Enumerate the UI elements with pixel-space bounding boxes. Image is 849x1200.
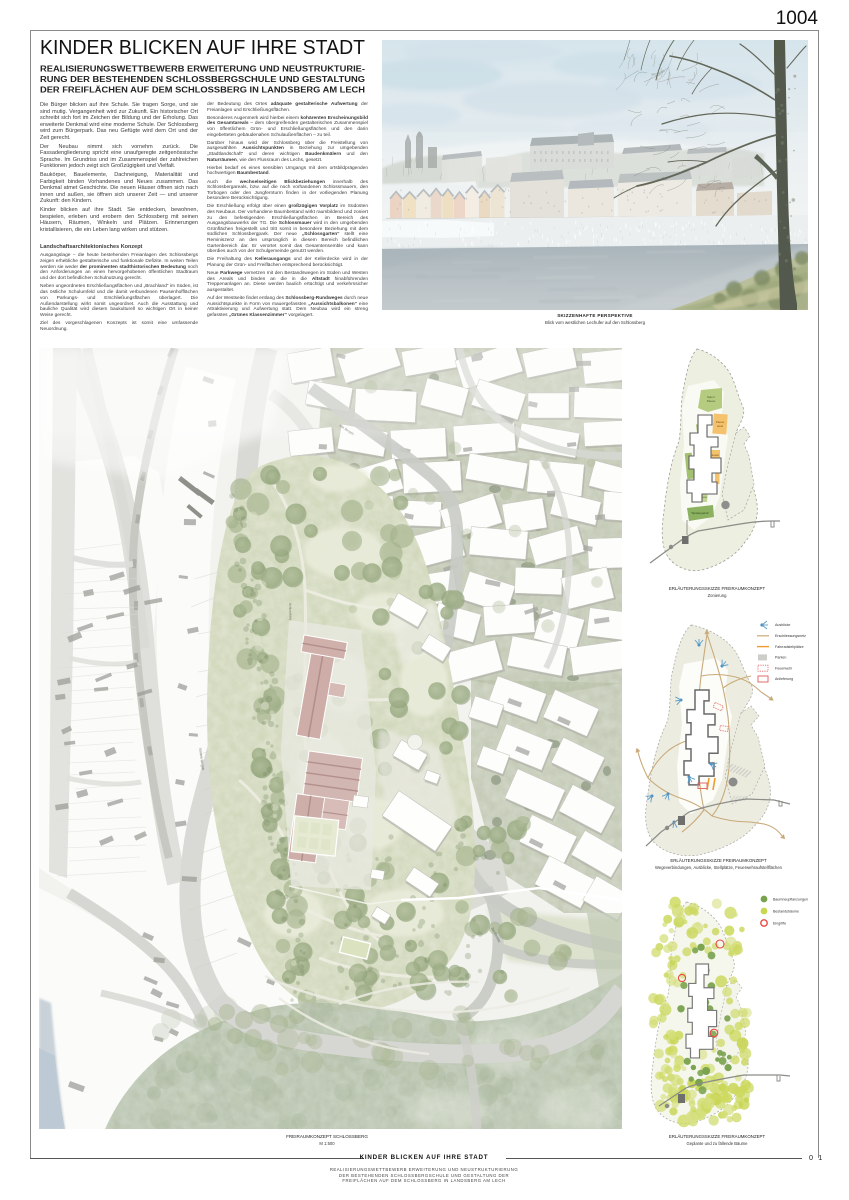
svg-text:Anlieferung: Anlieferung (775, 677, 793, 681)
svg-text:Parken: Parken (775, 656, 786, 660)
svg-text:Baumneupflanzungen: Baumneupflanzungen (773, 898, 808, 902)
svg-text:DER FREIFLÄCHEN AUF DEM SCHLOS: DER FREIFLÄCHEN AUF DEM SCHLOSSBERG IN L… (40, 86, 365, 95)
svg-text:west: west (717, 424, 723, 428)
svg-text:"Spielangebot": "Spielangebot" (691, 511, 709, 515)
svg-text:RUNG DER BESTEHENDEN SCHLOSSBE: RUNG DER BESTEHENDEN SCHLOSSBERGSCHULE U… (40, 75, 365, 84)
svg-text:Erschliessungsnetz: Erschliessungsnetz (775, 634, 806, 638)
svg-text:Eingriffe: Eingriffe (773, 922, 786, 926)
svg-text:KINDER BLICKEN AUF IHRE STADT: KINDER BLICKEN AUF IHRE STADT (40, 36, 365, 58)
svg-text:Bestandsbäume: Bestandsbäume (773, 910, 799, 914)
svg-text:Feuerwehr: Feuerwehr (775, 666, 793, 670)
svg-text:Pause: Pause (707, 399, 716, 403)
svg-text:Ausblicke: Ausblicke (775, 623, 790, 627)
svg-text:Schlossberg: Schlossberg (288, 603, 293, 621)
svg-text:Fahrradstellplätze: Fahrradstellplätze (775, 645, 804, 649)
svg-text:REALISIERUNGSWETTBEWERB ERWEIT: REALISIERUNGSWETTBEWERB ERWEITERUNG UND … (40, 65, 365, 74)
